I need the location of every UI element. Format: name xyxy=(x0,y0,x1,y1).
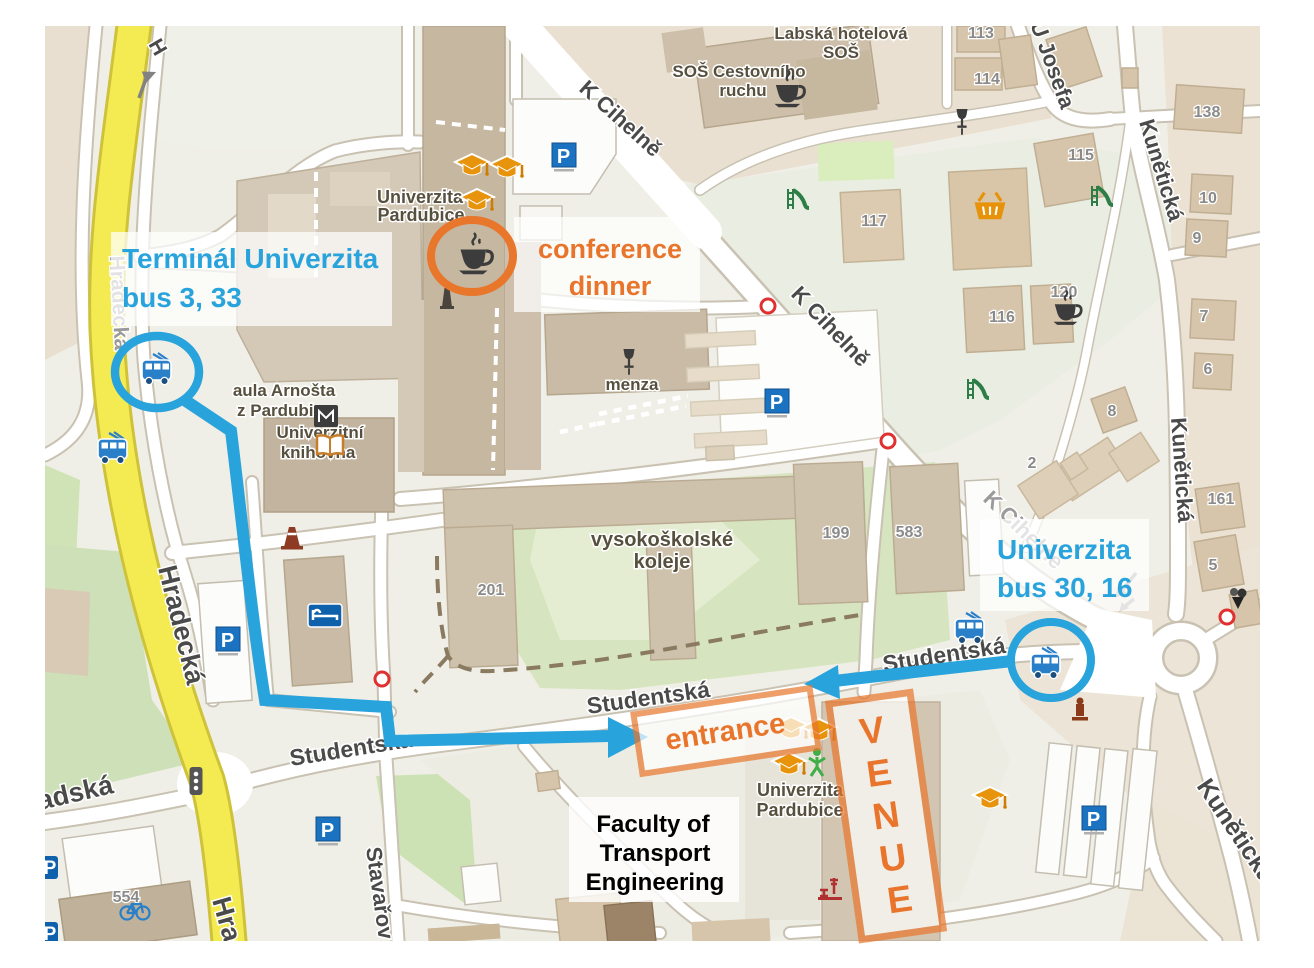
svg-text:Univerzita: Univerzita xyxy=(757,780,844,800)
svg-text:8: 8 xyxy=(1108,403,1117,420)
svg-text:138: 138 xyxy=(1194,104,1221,121)
svg-text:vysokoškolské: vysokoškolské xyxy=(591,529,733,551)
svg-text:5: 5 xyxy=(1209,557,1218,574)
svg-text:Engineering: Engineering xyxy=(586,869,725,896)
svg-text:2: 2 xyxy=(1028,455,1037,472)
svg-text:bus 3, 33: bus 3, 33 xyxy=(122,282,242,313)
svg-text:199: 199 xyxy=(823,525,850,542)
svg-text:114: 114 xyxy=(974,71,1000,88)
svg-text:koleje: koleje xyxy=(634,551,691,573)
svg-text:Labská hotelová: Labská hotelová xyxy=(774,24,908,43)
svg-text:117: 117 xyxy=(861,213,887,230)
svg-text:113: 113 xyxy=(968,25,994,42)
svg-text:ruchu: ruchu xyxy=(719,81,766,100)
svg-text:z Pardubic: z Pardubic xyxy=(237,401,323,420)
svg-text:10: 10 xyxy=(1199,190,1217,207)
svg-text:201: 201 xyxy=(478,582,505,599)
svg-text:161: 161 xyxy=(1208,491,1235,508)
svg-text:Terminál Univerzita: Terminál Univerzita xyxy=(122,243,379,274)
svg-text:6: 6 xyxy=(1204,361,1213,378)
svg-text:N: N xyxy=(870,793,902,837)
svg-text:SOŠ: SOŠ xyxy=(823,43,859,62)
svg-text:116: 116 xyxy=(989,309,1015,326)
svg-text:7: 7 xyxy=(1200,308,1209,325)
svg-text:9: 9 xyxy=(1193,230,1202,247)
svg-text:115: 115 xyxy=(1068,147,1094,164)
svg-text:aula Arnošta: aula Arnošta xyxy=(233,381,336,400)
svg-text:bus 30, 16: bus 30, 16 xyxy=(997,572,1132,603)
svg-text:P: P xyxy=(44,924,57,945)
svg-text:P: P xyxy=(44,858,57,879)
svg-text:Pardubice: Pardubice xyxy=(756,800,843,820)
svg-text:U: U xyxy=(877,836,909,880)
svg-text:Univerzita: Univerzita xyxy=(997,534,1131,565)
svg-text:menza: menza xyxy=(606,375,659,394)
svg-text:dinner: dinner xyxy=(569,271,652,301)
svg-text:Univerzita: Univerzita xyxy=(377,187,464,207)
svg-text:Transport: Transport xyxy=(600,840,711,867)
svg-text:583: 583 xyxy=(896,524,923,541)
svg-text:Faculty of: Faculty of xyxy=(596,811,710,838)
svg-text:conference: conference xyxy=(538,234,682,264)
